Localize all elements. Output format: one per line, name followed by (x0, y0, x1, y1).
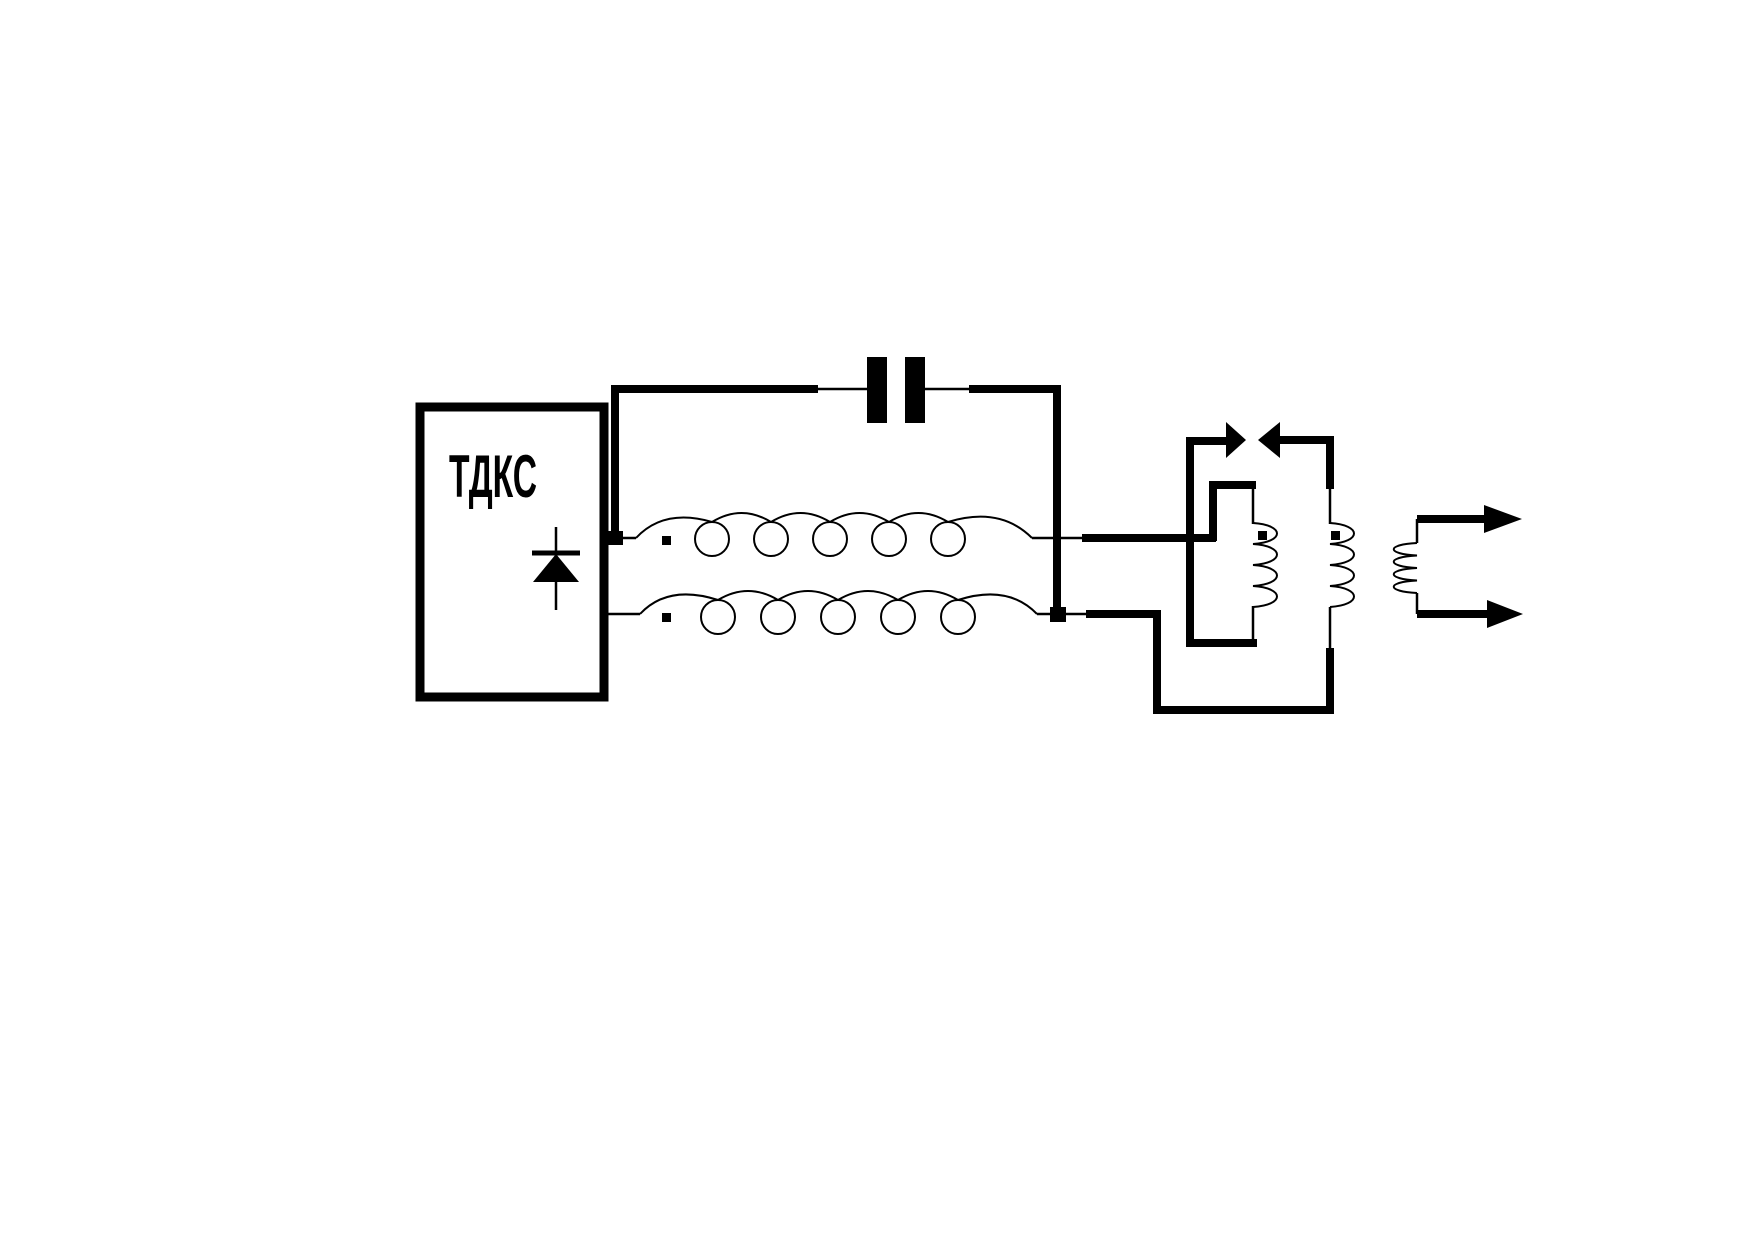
diode-anode-triangle (533, 554, 579, 582)
winding-loop (701, 600, 735, 634)
flyback-block: ТДКС (420, 407, 604, 697)
polarity-dot (662, 536, 671, 545)
output-terminals (1417, 505, 1523, 628)
polarity-dot (1331, 531, 1340, 540)
capacitor-branch (611, 357, 1061, 611)
arrow-right-icon (1484, 505, 1522, 533)
winding-arcs (1394, 543, 1417, 593)
return-route (1066, 607, 1334, 714)
flyback-diode-icon (532, 527, 580, 610)
winding-loop (941, 600, 975, 634)
capacitor-plate-right (905, 357, 925, 423)
winding-loop (881, 600, 915, 634)
junction-square (1050, 607, 1066, 622)
coupling-winding-bottom (602, 591, 1066, 634)
polarity-dot (662, 613, 671, 622)
winding-loop (761, 600, 795, 634)
circuit-canvas: ТДКС (0, 0, 1754, 1240)
winding-arcs (640, 591, 1037, 614)
winding-loop (931, 522, 965, 556)
winding-loop (754, 522, 788, 556)
terminal-square (608, 531, 623, 545)
winding-loop (813, 522, 847, 556)
arrow-right-icon (1487, 600, 1523, 628)
diode-left-pointing-icon (1258, 422, 1280, 458)
flyback-label: ТДКС (449, 443, 537, 510)
link-to-primary (1082, 485, 1256, 541)
schematic-page: ТДКС (0, 0, 1754, 1240)
hv-transformer (1253, 523, 1354, 607)
winding-loop (821, 600, 855, 634)
capacitor-plate-left (867, 357, 887, 423)
winding-loop (872, 522, 906, 556)
coupling-winding-top (602, 513, 1082, 556)
output-winding (1394, 519, 1417, 614)
polarity-dot (1258, 531, 1267, 540)
diode-right-pointing-icon (1226, 422, 1246, 458)
winding-loop (695, 522, 729, 556)
